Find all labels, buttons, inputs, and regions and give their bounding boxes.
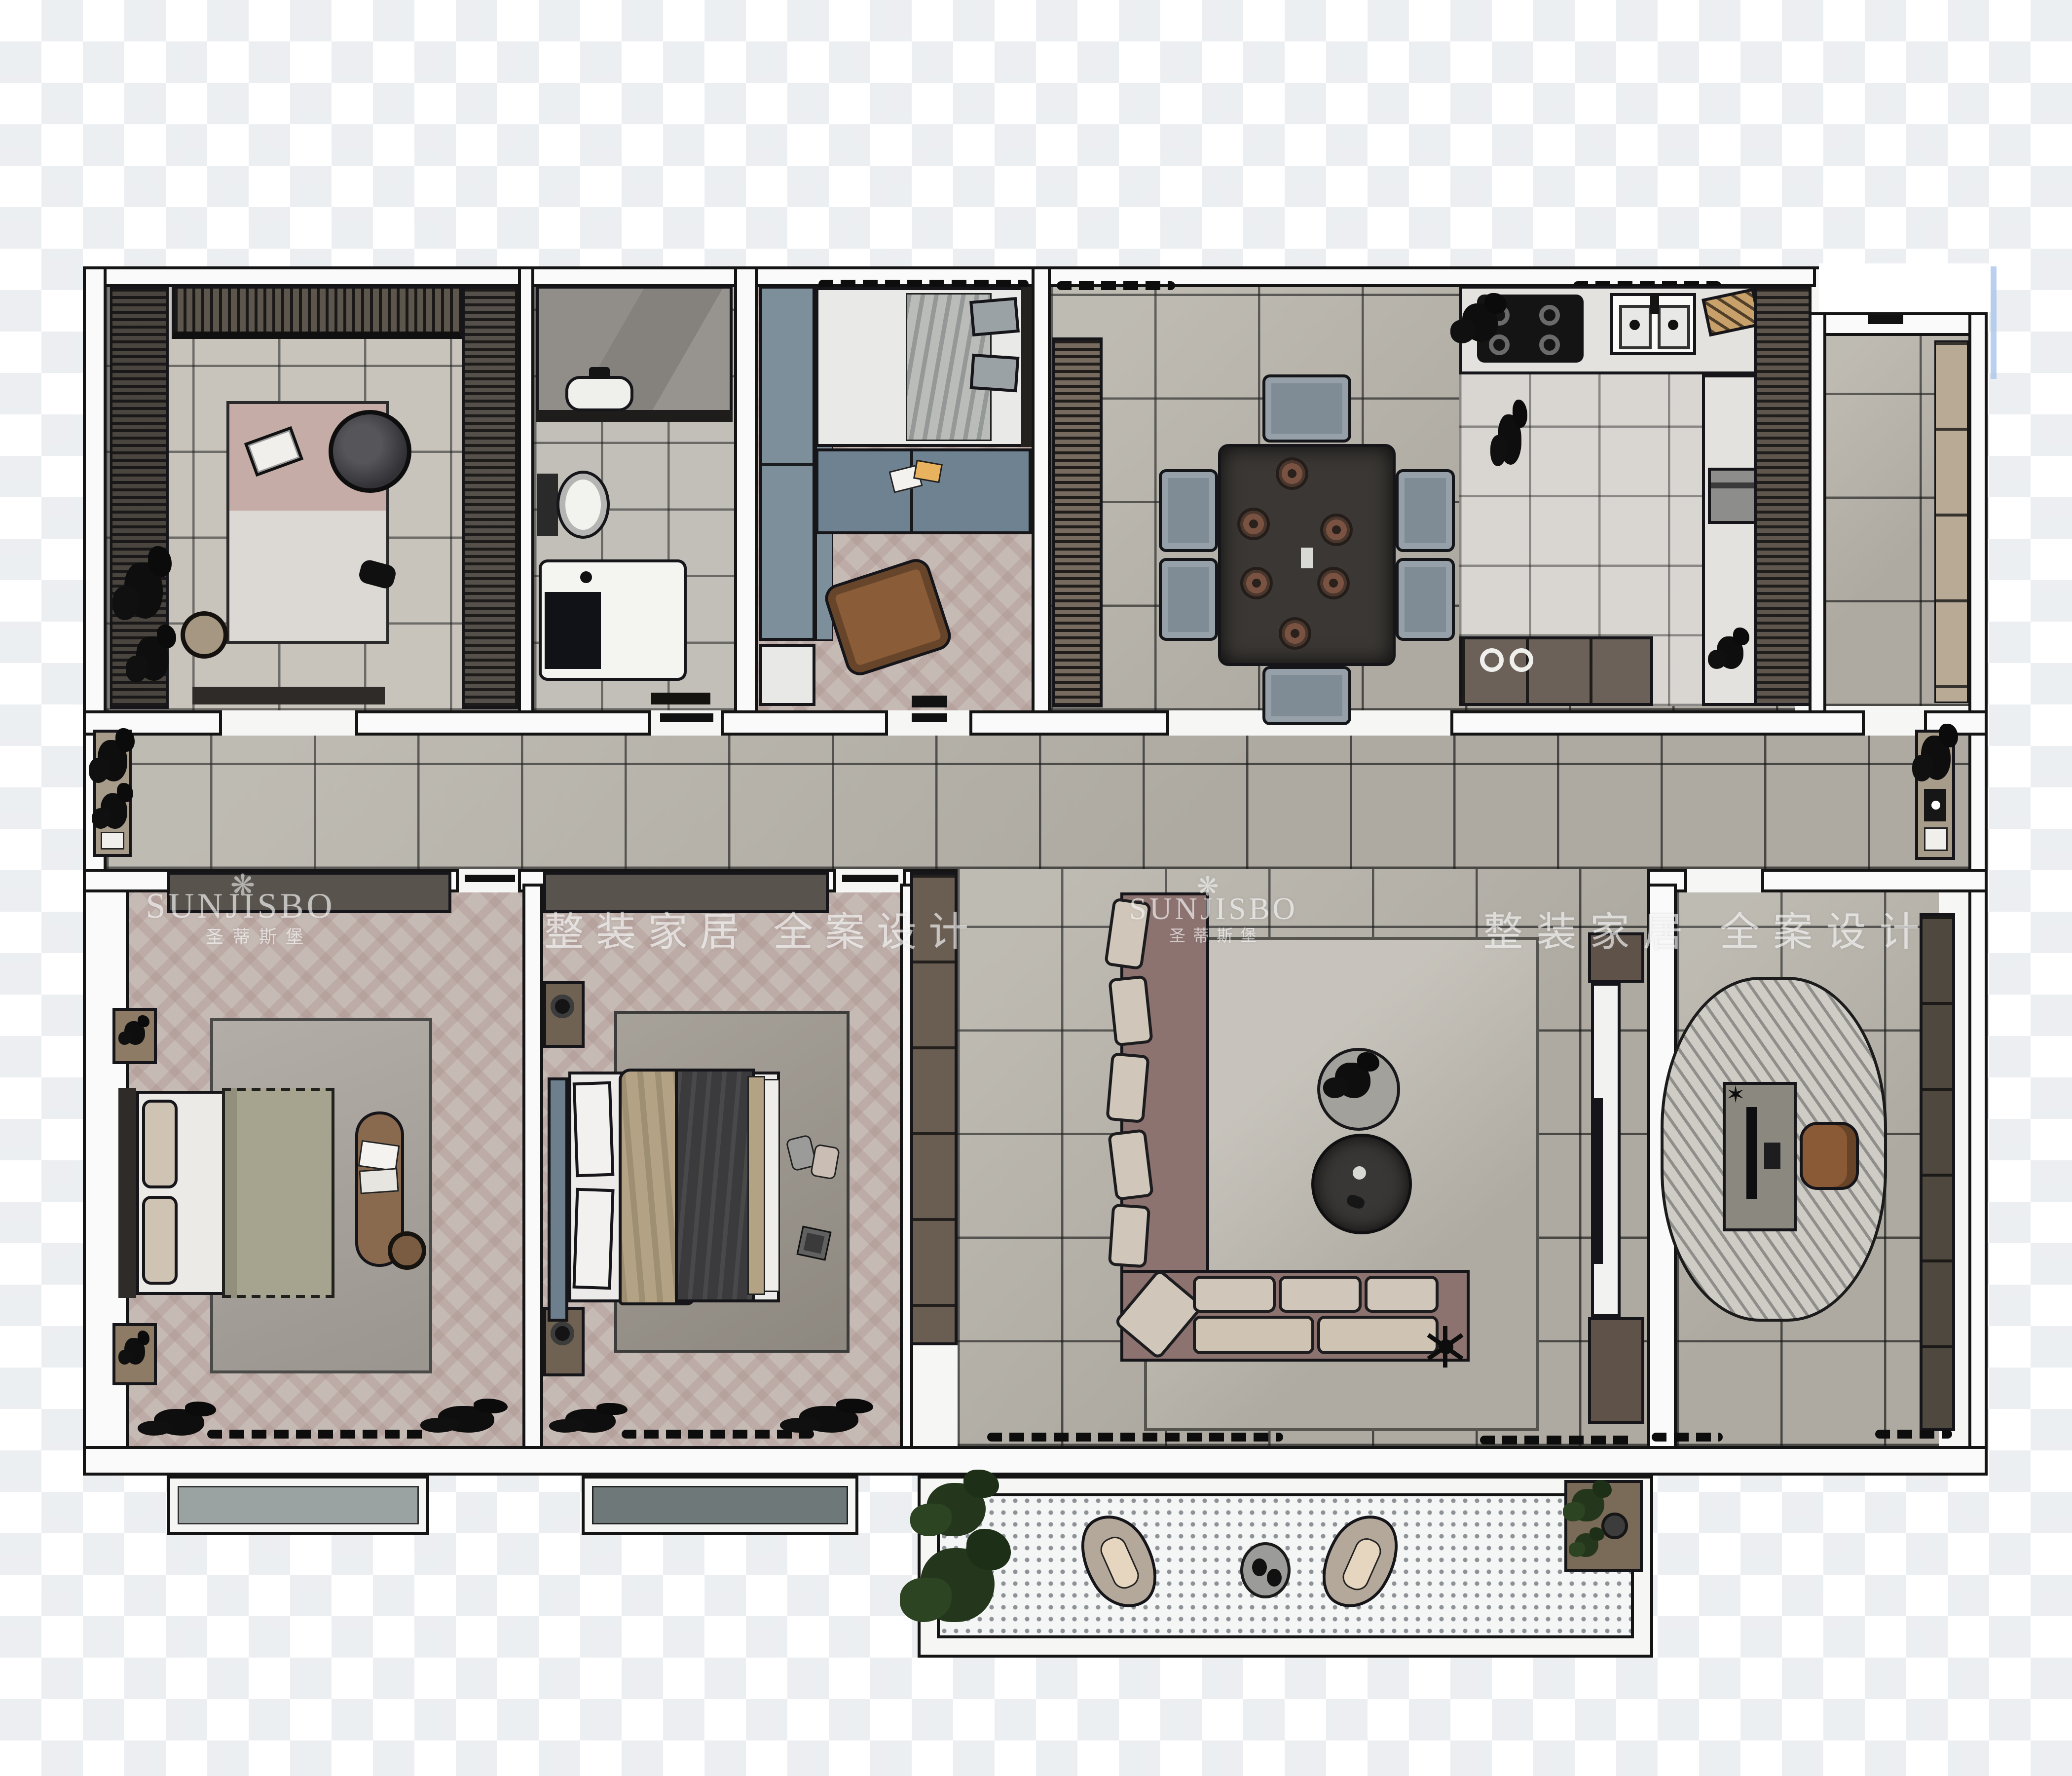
- kitchen-plant-scribble: [1717, 636, 1743, 669]
- dining-chair: [1159, 558, 1218, 641]
- place-setting: [1317, 567, 1350, 599]
- wall-bath-kids: [734, 266, 758, 736]
- monitor-icon: [1746, 1107, 1757, 1199]
- dining-chair: [1159, 469, 1218, 552]
- sofa-back-cushion: [1106, 1052, 1150, 1123]
- place-setting: [1276, 457, 1308, 490]
- hall-plant-left: [101, 793, 127, 829]
- media-cabinet-bottom: [1588, 1317, 1644, 1424]
- wall-hall-top-seg: [969, 710, 1169, 736]
- bedroom1-wardrobe-run: [167, 872, 451, 913]
- faucet-icon: [589, 367, 610, 379]
- cloakroom-top-cabinets: [172, 286, 462, 339]
- kids-low-cabinet: [759, 644, 815, 706]
- window-plant-scribble: [799, 1406, 858, 1433]
- table-item-dot: [1353, 1166, 1366, 1180]
- table-runner-item: [1301, 548, 1313, 568]
- sofa-seat-cushion: [1365, 1276, 1439, 1313]
- bench-magazines: [359, 1168, 399, 1194]
- bathroom-sink: [565, 376, 633, 411]
- pouf: [181, 611, 228, 659]
- sofa-seat-cushion: [1279, 1276, 1362, 1313]
- kitchen-utensil-scribble: [1498, 414, 1521, 465]
- sofa-back-cushion: [1108, 1203, 1151, 1268]
- bathroom-door-threshold: [651, 693, 710, 704]
- window-curtain-scribble: [1480, 1436, 1634, 1444]
- window-curtain-scribble: [987, 1433, 1283, 1442]
- door-threshold: [1868, 315, 1903, 324]
- window-curtain-scribble: [1652, 1433, 1723, 1442]
- kids-wardrobe: [759, 286, 815, 641]
- master-sheet-edge: [764, 1079, 780, 1292]
- floor-plan-rendering: ✶ ❋ SUNJISBO 圣蒂斯堡 整装家居 全案设计 ❋ SUNJISBO 圣…: [0, 0, 2072, 1776]
- bay-window-master: [582, 1476, 858, 1535]
- bed1-pillow: [142, 1100, 178, 1188]
- dining-chair: [1262, 374, 1351, 443]
- wall-bed1-bed2: [522, 884, 543, 1476]
- master-duvet-charcoal: [675, 1069, 755, 1302]
- round-lounge-chair: [329, 410, 411, 493]
- hall-plant-left: [98, 740, 127, 781]
- window-bench: [192, 687, 385, 704]
- toilet-tank: [537, 474, 558, 536]
- window-curtain-scribble: [1875, 1430, 1952, 1439]
- utility-shelf-run: [1934, 340, 1968, 703]
- keyboard-icon: [1764, 1143, 1780, 1169]
- double-sink-icon: [1610, 293, 1696, 355]
- master-headboard: [548, 1077, 568, 1322]
- kitchen-pot-scribble: [1462, 303, 1498, 342]
- place-setting: [1279, 617, 1311, 650]
- hall-console-left-drawer: [101, 832, 124, 850]
- plant-stand-plants: [1572, 1489, 1604, 1521]
- bedroom1-pouf: [388, 1231, 426, 1270]
- floor-lamp-icon: [1421, 1323, 1471, 1373]
- window-curtain-scribble: [207, 1430, 429, 1439]
- hall-plant-right: [1921, 736, 1951, 780]
- door-threshold: [842, 875, 898, 882]
- nightstand-lamp: [551, 1322, 574, 1345]
- bay-window-bedroom1: [167, 1476, 429, 1535]
- wall-hall-top-seg: [355, 710, 651, 736]
- wall-hall-top-seg: [721, 710, 888, 736]
- master-wardrobe-run: [543, 872, 829, 913]
- dining-chair: [1396, 558, 1455, 641]
- bed1-pillow: [142, 1196, 178, 1285]
- office-chair: [1800, 1122, 1859, 1190]
- place-setting: [1237, 508, 1270, 540]
- bed1-headboard: [118, 1088, 136, 1298]
- dining-chair: [1396, 469, 1455, 552]
- window-curtain-scribble: [1057, 281, 1175, 290]
- tv-icon: [1591, 1098, 1603, 1264]
- cloakroom-wardrobe-right: [462, 286, 518, 709]
- nightstand-decor: [124, 1021, 145, 1045]
- door-threshold: [912, 713, 947, 722]
- window-curtain-scribble: [622, 1430, 814, 1439]
- master-pillow: [573, 1081, 615, 1178]
- toilet-icon: [556, 471, 610, 539]
- door-threshold: [660, 713, 713, 722]
- sofa-back-cushion: [1108, 1129, 1154, 1201]
- wall-hall-bottom-seg: [1761, 869, 1988, 892]
- kids-pillow: [970, 354, 1020, 393]
- sofa-seat-cushion: [1193, 1316, 1314, 1354]
- wall-cloak-bath: [518, 266, 534, 736]
- kitchen-base-cabinets: [1459, 636, 1653, 706]
- study-bookcase: [1920, 913, 1955, 1431]
- master-tray: [796, 1225, 831, 1260]
- wall-hall-top-seg: [1450, 710, 1865, 736]
- wall-kids-dining: [1032, 266, 1051, 736]
- bench-magazines: [358, 1140, 400, 1172]
- window-plant-scribble: [154, 1409, 204, 1436]
- plant-stand-pot: [1601, 1513, 1628, 1539]
- grid-accent-line: [1991, 266, 1997, 379]
- washer-door: [545, 592, 601, 669]
- sofa-back-cushion: [1108, 975, 1153, 1046]
- coffee-table-plant: [1335, 1063, 1370, 1098]
- bed1-duvet-green: [222, 1088, 334, 1298]
- sofa-seat-cushion: [1193, 1276, 1276, 1313]
- media-cabinet-top: [1588, 932, 1644, 983]
- hall-console-right-drawer: [1924, 827, 1948, 851]
- dining-table: [1218, 444, 1396, 666]
- master-duvet-tan-edge: [747, 1076, 765, 1295]
- vanity-counter-edge: [536, 410, 733, 422]
- potted-plant-icon: [136, 636, 169, 681]
- nightstand-decor: [124, 1338, 145, 1365]
- place-setting: [1240, 567, 1273, 599]
- window-plant-scribble: [438, 1406, 494, 1433]
- washer-knob: [580, 571, 592, 583]
- dining-sideboard: [1052, 337, 1103, 707]
- place-setting: [1320, 514, 1353, 546]
- master-side-wardrobe: [910, 872, 958, 1345]
- door-threshold: [465, 875, 515, 882]
- balcony-side-table: [1240, 1542, 1291, 1598]
- kitchen-tall-cabinets: [1754, 286, 1812, 706]
- hall-lamp-dot: [1931, 801, 1940, 810]
- window-plant-scribble: [565, 1409, 616, 1433]
- wall-right: [1968, 312, 1988, 1476]
- hallway-floor: [107, 736, 1968, 869]
- potted-plant-icon: [124, 562, 163, 619]
- kids-door-threshold: [912, 696, 947, 707]
- wall-bottom: [83, 1446, 1988, 1476]
- coffee-table-dark: [1311, 1134, 1412, 1234]
- master-pillow: [572, 1188, 614, 1290]
- dining-chair: [1262, 666, 1351, 725]
- kids-headboard: [1021, 287, 1032, 447]
- desk-plant-scribble: ✶: [1726, 1085, 1749, 1109]
- floor-plan-screenshot: ✶ ❋ SUNJISBO 圣蒂斯堡 整装家居 全案设计 ❋ SUNJISBO 圣…: [0, 0, 2072, 1776]
- kids-pillow: [969, 297, 1020, 336]
- nightstand-lamp: [551, 995, 574, 1018]
- plan-corner-cutout: [1819, 263, 1991, 312]
